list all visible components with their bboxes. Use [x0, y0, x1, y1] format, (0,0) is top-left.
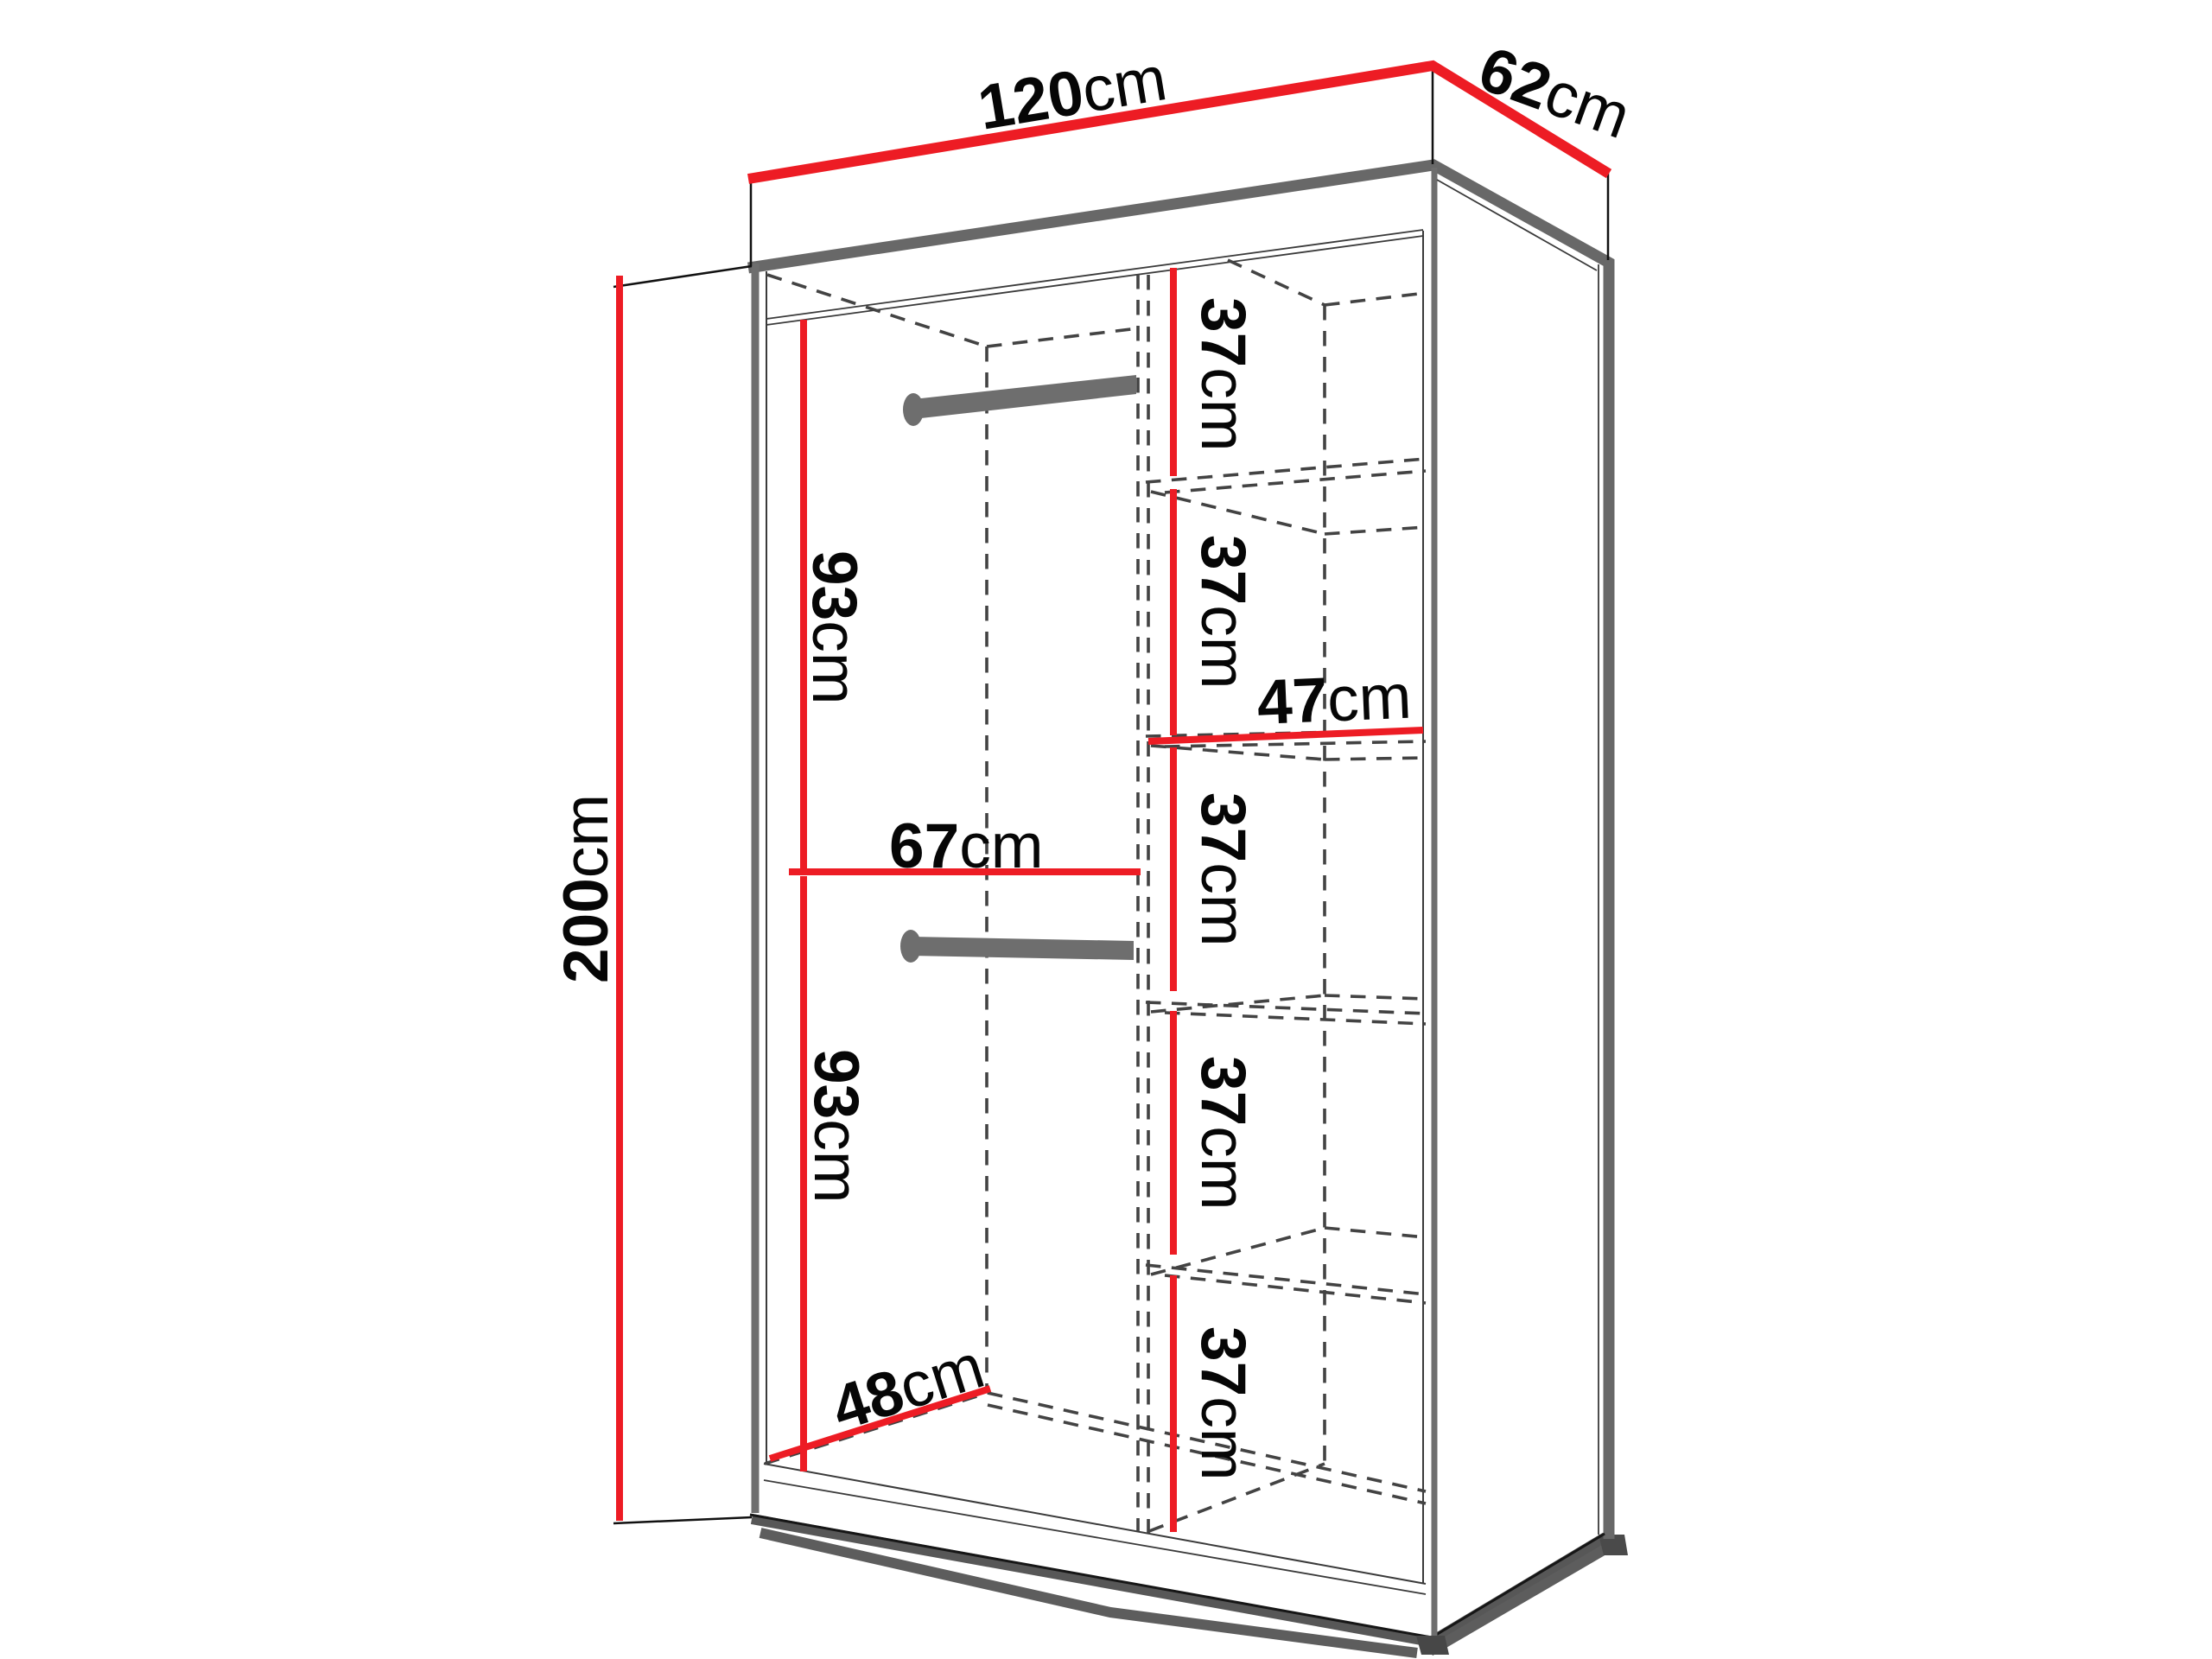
svg-text:200cm: 200cm	[551, 794, 621, 983]
svg-text:47cm: 47cm	[1255, 662, 1413, 738]
svg-text:93cm: 93cm	[801, 1049, 871, 1204]
svg-text:37cm: 37cm	[1188, 1326, 1258, 1481]
svg-text:37cm: 37cm	[1188, 1056, 1258, 1211]
svg-text:37cm: 37cm	[1188, 792, 1258, 947]
svg-text:93cm: 93cm	[799, 550, 869, 705]
svg-text:37cm: 37cm	[1188, 297, 1258, 452]
svg-text:37cm: 37cm	[1188, 535, 1258, 690]
svg-text:67cm: 67cm	[889, 811, 1044, 881]
